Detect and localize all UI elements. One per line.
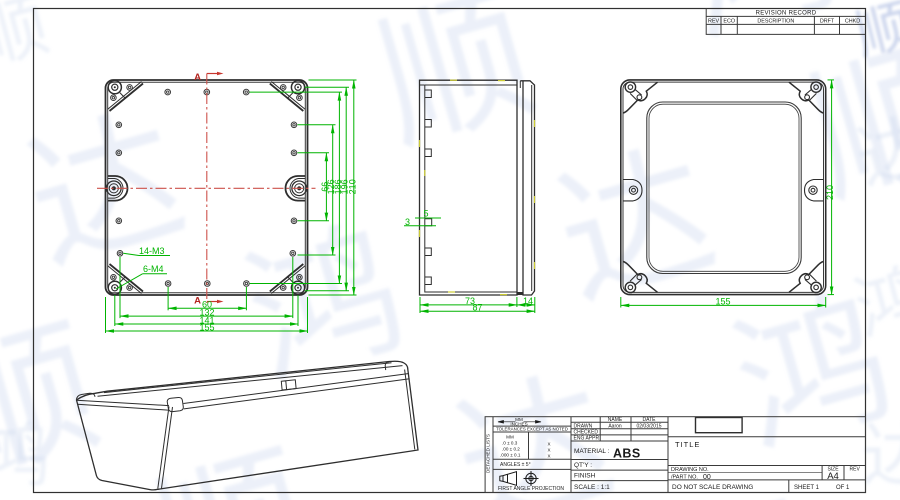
svg-text:210: 210 bbox=[347, 179, 357, 194]
svg-text:14: 14 bbox=[523, 296, 533, 306]
svg-text:3: 3 bbox=[405, 217, 410, 227]
svg-text:ABS: ABS bbox=[613, 446, 641, 460]
svg-text:A: A bbox=[194, 296, 201, 307]
svg-text:155: 155 bbox=[715, 297, 730, 307]
svg-text:顺: 顺 bbox=[0, 0, 57, 79]
svg-text:155: 155 bbox=[199, 322, 214, 332]
svg-text:6-M4: 6-M4 bbox=[143, 264, 164, 274]
svg-text:CHECKED: CHECKED bbox=[574, 430, 599, 436]
svg-text:MATERIAL :: MATERIAL : bbox=[574, 448, 610, 455]
svg-text:达: 达 bbox=[540, 124, 731, 327]
svg-text:FIRST ANGLE PROJECTION: FIRST ANGLE PROJECTION bbox=[498, 486, 564, 492]
svg-text:X: X bbox=[547, 448, 550, 453]
svg-text:5: 5 bbox=[423, 209, 428, 219]
svg-text:NAME: NAME bbox=[608, 417, 623, 423]
svg-text:TITLE: TITLE bbox=[675, 440, 700, 449]
svg-text:.00 ± 0.2: .00 ± 0.2 bbox=[502, 447, 520, 452]
svg-text:87: 87 bbox=[472, 303, 482, 313]
svg-text:鸿: 鸿 bbox=[0, 417, 50, 495]
svg-text:CHKD: CHKD bbox=[845, 19, 860, 25]
svg-text:A: A bbox=[194, 72, 201, 83]
svg-text:Aaron: Aaron bbox=[608, 423, 622, 429]
svg-text:DESCRIPTION: DESCRIPTION bbox=[757, 19, 794, 25]
svg-text:DO NOT SCALE DRAWING: DO NOT SCALE DRAWING bbox=[672, 484, 753, 491]
svg-text:DATE: DATE bbox=[643, 417, 657, 423]
svg-text:DRAWING NO.: DRAWING NO. bbox=[671, 467, 709, 473]
svg-text:ECO: ECO bbox=[723, 19, 735, 25]
svg-text:MM: MM bbox=[506, 435, 514, 440]
svg-text:ANGLES ± 5°: ANGLES ± 5° bbox=[500, 462, 531, 468]
svg-text:210: 210 bbox=[825, 185, 835, 200]
svg-text:X: X bbox=[547, 454, 550, 459]
svg-text:REVISION RECORD: REVISION RECORD bbox=[756, 11, 817, 17]
svg-text:REV: REV bbox=[850, 466, 861, 472]
svg-text:QT'Y :: QT'Y : bbox=[574, 462, 592, 469]
svg-text:SHEET 1: SHEET 1 bbox=[794, 485, 820, 491]
svg-text:ENG APPR: ENG APPR bbox=[574, 436, 600, 442]
svg-text:DETACHED LISTS: DETACHED LISTS bbox=[486, 434, 491, 473]
svg-text:达: 达 bbox=[862, 417, 900, 495]
svg-text:.0 ± 0.3: .0 ± 0.3 bbox=[502, 441, 518, 446]
svg-text:OF 1: OF 1 bbox=[836, 485, 850, 491]
svg-text:14-M3: 14-M3 bbox=[139, 246, 165, 256]
svg-text:顺: 顺 bbox=[138, 427, 329, 500]
svg-text:SCALE : 1:1: SCALE : 1:1 bbox=[574, 484, 610, 491]
svg-text:A4: A4 bbox=[827, 471, 839, 482]
svg-text:/PART NO.: /PART NO. bbox=[671, 474, 698, 480]
svg-text:REV: REV bbox=[708, 19, 719, 25]
svg-text:X: X bbox=[547, 442, 550, 447]
svg-text:DRAWN: DRAWN bbox=[574, 423, 593, 429]
svg-text:.000 ± 0.1: .000 ± 0.1 bbox=[500, 453, 521, 458]
svg-text:02/03/2015: 02/03/2015 bbox=[636, 423, 661, 429]
svg-text:00: 00 bbox=[703, 474, 711, 481]
svg-text:FINISH: FINISH bbox=[574, 473, 596, 480]
svg-text:TOLERANCES EXCEPT AS NOTED: TOLERANCES EXCEPT AS NOTED bbox=[496, 427, 568, 432]
svg-text:DRFT: DRFT bbox=[820, 19, 835, 25]
